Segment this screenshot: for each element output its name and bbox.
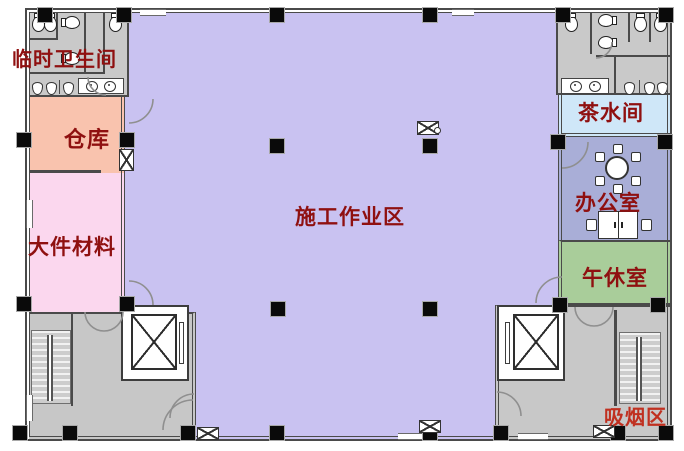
structural-column [556, 8, 570, 22]
room-label-work-area: 施工作业区 [295, 207, 405, 228]
structural-column [181, 426, 195, 440]
door-swing-icon [575, 307, 594, 326]
hinge-dot [434, 127, 441, 134]
window-icon [518, 433, 548, 440]
room-label-smoking: 吸烟区 [604, 408, 667, 428]
structural-column [63, 426, 77, 440]
structural-column [553, 298, 567, 312]
room-label-office: 办公室 [575, 193, 641, 214]
structural-column [38, 8, 52, 22]
door-swing-icon [170, 394, 194, 418]
door-swing-icon [88, 77, 106, 95]
structural-column [551, 135, 565, 149]
door-swing-icon [497, 392, 521, 416]
door-swing-icon [85, 312, 104, 331]
structural-column [270, 8, 284, 22]
room-label-tea: 茶水间 [578, 103, 644, 124]
structural-column [270, 139, 284, 153]
structural-column [651, 298, 665, 312]
structural-column [17, 297, 31, 311]
structural-column [658, 135, 672, 149]
structural-column [120, 297, 134, 311]
door-swing-icon [129, 99, 153, 123]
window-icon [26, 395, 33, 421]
structural-column [117, 8, 131, 22]
structural-column [423, 139, 437, 153]
structural-column [13, 426, 27, 440]
vent-bowtie-icon [419, 420, 441, 433]
vent-bowtie-icon [119, 149, 134, 171]
room-label-temp-toilet: 临时卫生间 [12, 50, 117, 70]
room-label-nap: 午休室 [582, 268, 648, 289]
door-swing-icon [596, 42, 612, 58]
structural-column [423, 302, 437, 316]
door-swing-icon [104, 312, 123, 331]
window-icon [140, 9, 166, 16]
window-icon [26, 200, 33, 228]
structural-column [271, 302, 285, 316]
room-label-warehouse: 仓库 [64, 129, 110, 151]
structural-column [494, 426, 508, 440]
structural-column [423, 8, 437, 22]
window-icon [452, 9, 474, 16]
door-swing-icon [594, 307, 613, 326]
structural-column [270, 426, 284, 440]
room-label-materials: 大件材料 [28, 237, 116, 258]
structural-column [17, 133, 31, 147]
door-swing-icon [562, 142, 588, 168]
floor-plan: 临时卫生间 仓库 大件材料 施工作业区 茶水间 办公室 午休室 吸烟区 [0, 0, 684, 451]
structural-column [120, 133, 134, 147]
structural-column [659, 8, 673, 22]
vent-bowtie-icon [197, 427, 219, 440]
